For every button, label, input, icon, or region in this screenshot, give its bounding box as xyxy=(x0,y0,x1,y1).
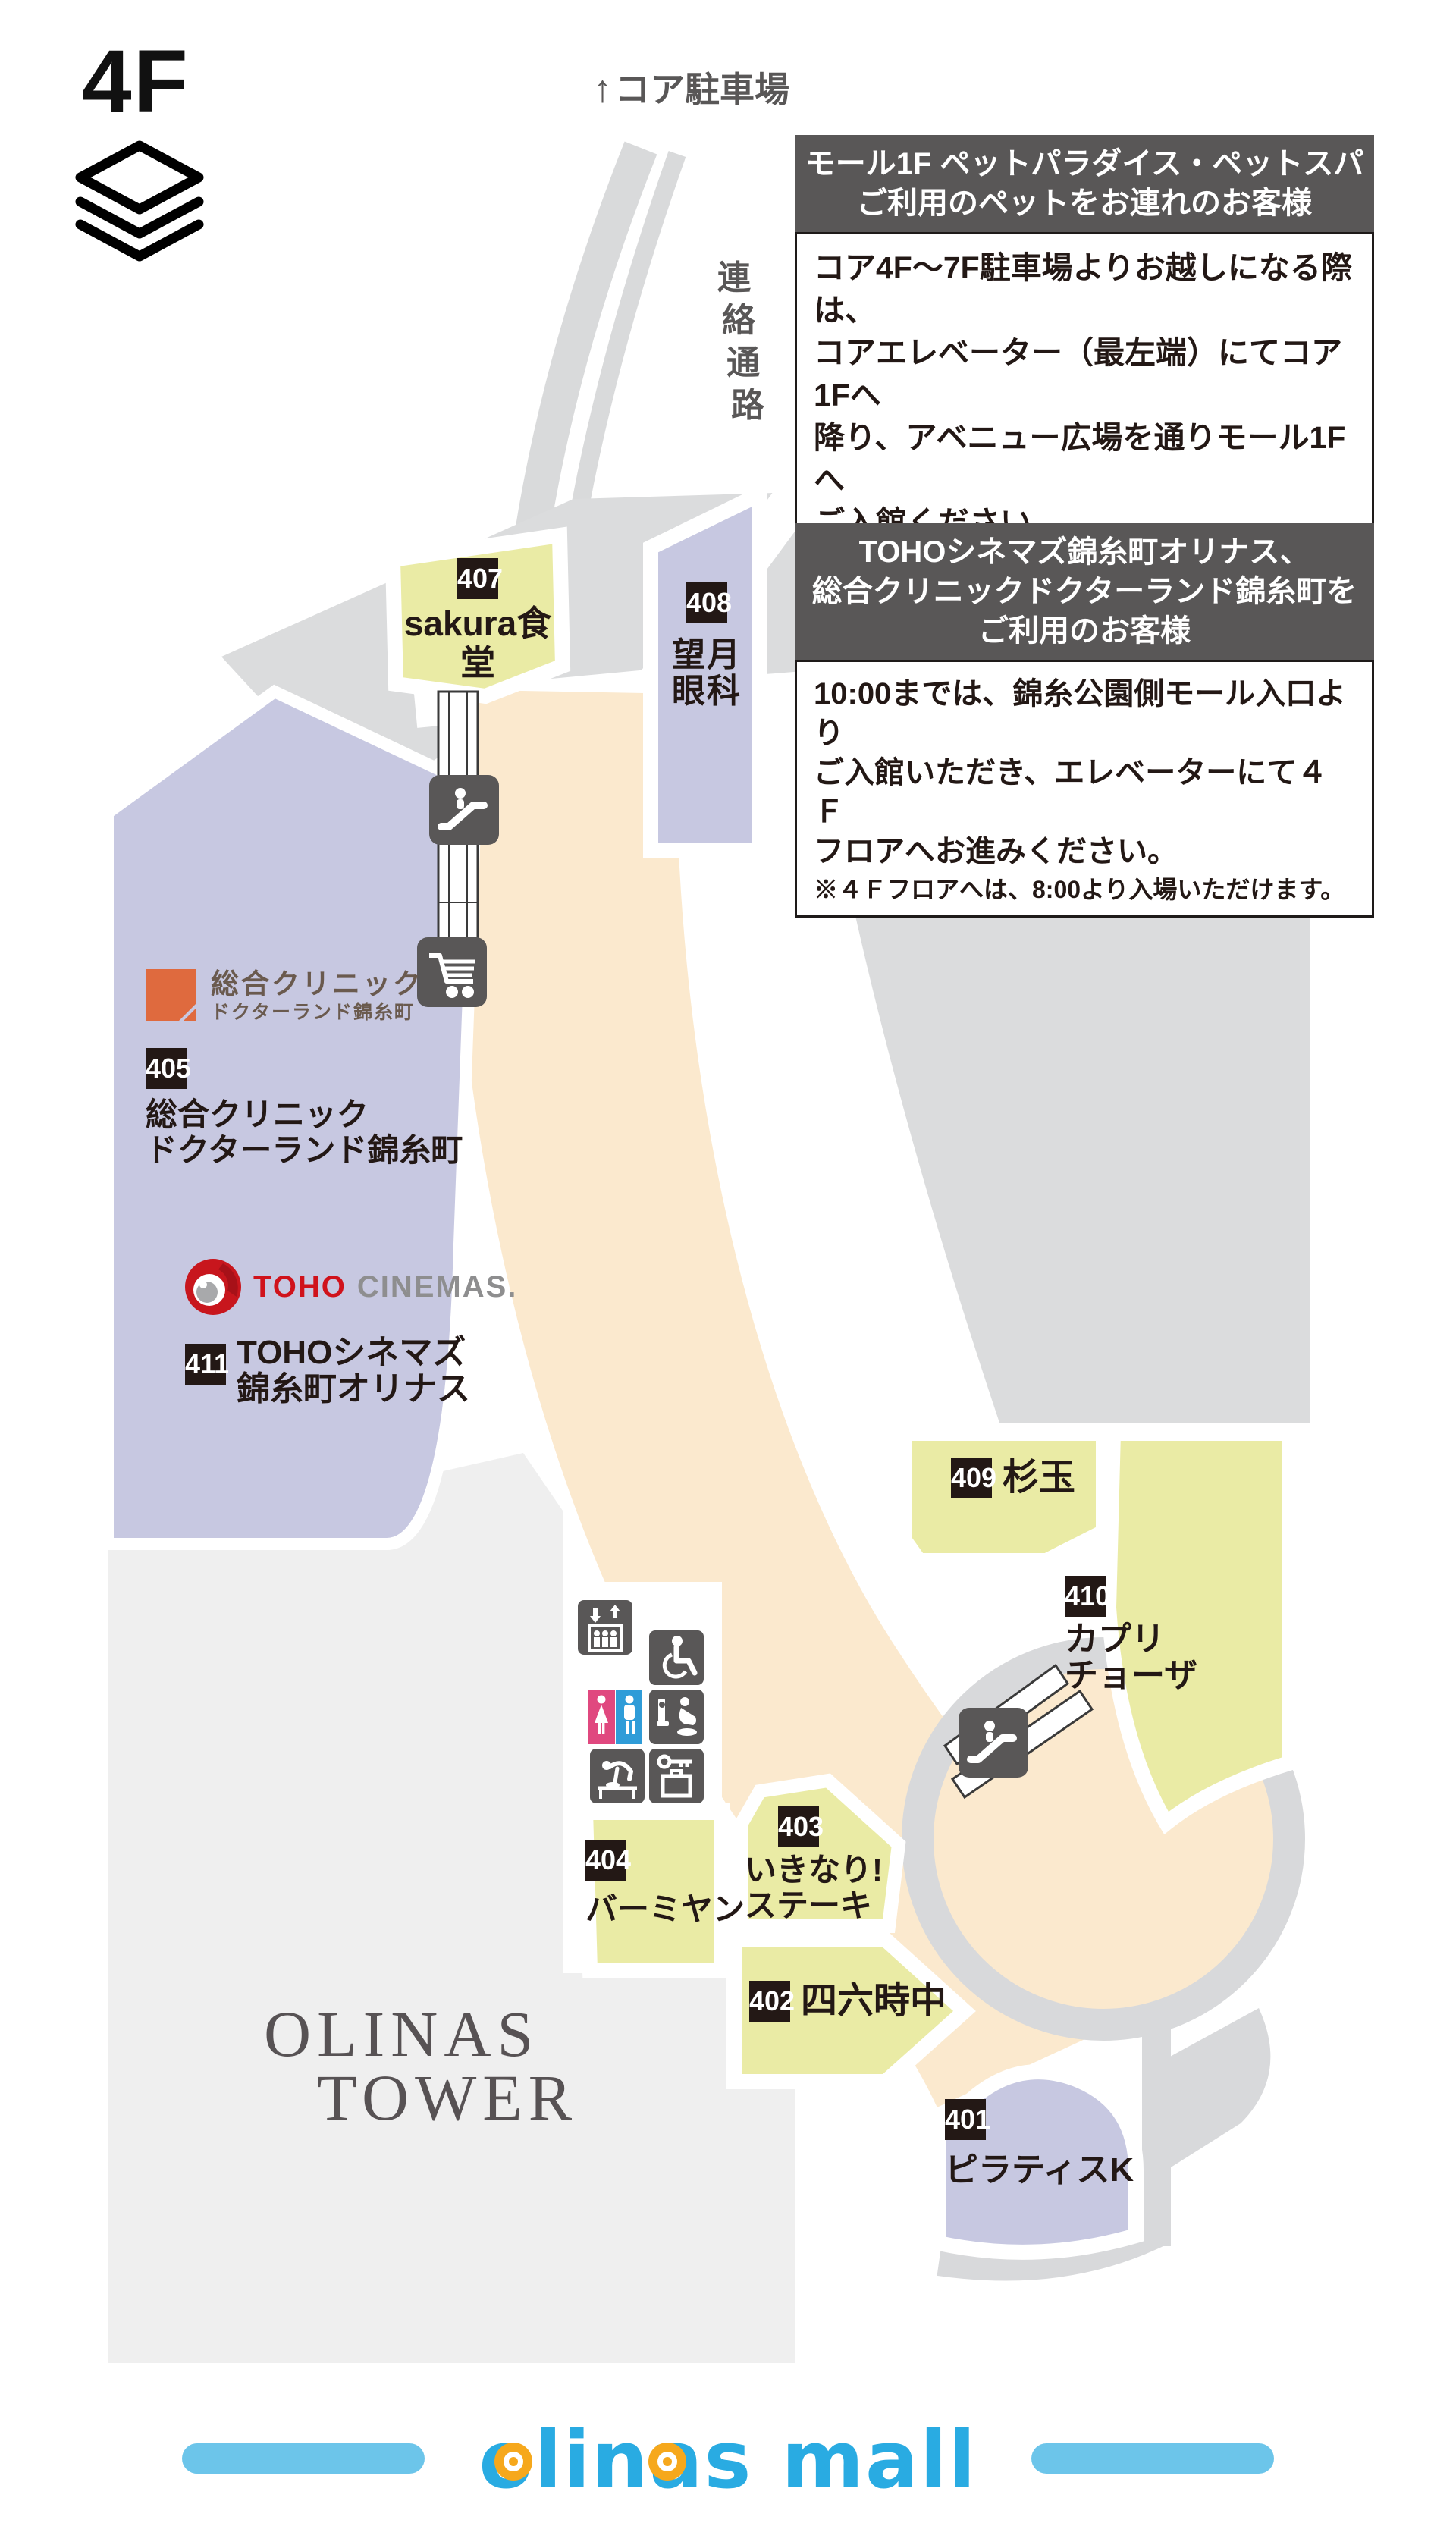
baby-changing-icon xyxy=(590,1749,645,1803)
store-name: 総合クリニック xyxy=(146,1097,463,1132)
store-name: ピラティスK xyxy=(945,2152,1134,2189)
coin-locker-icon xyxy=(649,1749,704,1803)
store-name: ステーキ xyxy=(745,1887,883,1923)
store-number-badge: 402 xyxy=(749,1981,790,2022)
store-number-badge: 403 xyxy=(778,1806,819,1847)
toho-cinemas-logo-icon xyxy=(184,1257,243,1316)
store-label-401: 401 ピラティスK xyxy=(945,2099,1134,2189)
store-name: 眼科 xyxy=(660,673,754,710)
store-label-410: 410 カプリ チョーザ xyxy=(1065,1576,1197,1694)
connector-corridor xyxy=(532,148,677,540)
parking-direction-label: ↑コア駐車場 xyxy=(593,62,789,112)
logo-a-accent xyxy=(648,2443,686,2481)
logo-wordmark: olinas mall xyxy=(479,2414,977,2506)
store-name: sakura食堂 xyxy=(388,604,567,682)
floor-label: 4F xyxy=(82,30,190,133)
layers-icon xyxy=(73,138,206,265)
store-name: ドクターランド錦糸町 xyxy=(146,1132,463,1168)
logo-right-bar xyxy=(1031,2443,1274,2474)
corridor-label-char: 通 xyxy=(726,335,760,384)
wheelchair-icon xyxy=(649,1630,704,1685)
store-number-badge: 407 xyxy=(457,558,498,599)
floor-map-page: 4F ↑コア駐車場 連 絡 通 路 モール1F ペットパラダイス・ペットスパ ご… xyxy=(0,0,1456,2548)
logo-left-bar xyxy=(182,2443,425,2474)
store-label-408: 408 望月 眼科 xyxy=(660,582,754,710)
store-name: 錦糸町オリナス xyxy=(237,1371,470,1407)
store-name: 杉玉 xyxy=(1003,1458,1075,1498)
store-number-badge: 410 xyxy=(1065,1576,1106,1617)
elevator-icon xyxy=(578,1600,632,1655)
store-number-badge: 404 xyxy=(585,1840,626,1881)
logo-o-accent xyxy=(494,2443,532,2481)
cinema-clinic-notice-header: TOHOシネマズ錦糸町オリナス、 総合クリニックドクターランド錦糸町を ご利用の… xyxy=(795,523,1374,660)
store-name: TOHOシネマズ xyxy=(237,1335,470,1371)
store-number-badge: 401 xyxy=(945,2099,986,2140)
olinas-tower-label: OLINAS TOWER xyxy=(114,2002,599,2129)
shopping-cart-icon xyxy=(417,937,487,1007)
cinema-clinic-notice-note: ※４Ｆフロアへは、8:00より入場いただけます。 xyxy=(814,874,1357,905)
store-label-405: 405 総合クリニック ドクターランド錦糸町 xyxy=(146,1048,463,1168)
store-label-404: 404 バーミヤン xyxy=(585,1840,745,1927)
escalator-icon xyxy=(429,775,499,845)
store-name: バーミヤン xyxy=(585,1891,745,1927)
clinic-logo-icon xyxy=(144,968,199,1024)
store-name: 望月 xyxy=(660,637,754,673)
store-label-409: 409 杉玉 xyxy=(951,1458,1075,1498)
store-label-411: 411 TOHOシネマズ 錦糸町オリナス xyxy=(185,1335,470,1407)
corridor-label-char: 絡 xyxy=(722,293,755,341)
cinema-clinic-notice-body: 10:00までは、錦糸公園側モール入口より ご入館いただき、エレベーターにて４Ｆ… xyxy=(795,660,1374,918)
olinas-mall-logo: olinas mall xyxy=(182,2389,1274,2525)
store-label-403: 403 いきなり! ステーキ xyxy=(745,1806,883,1923)
store-name: 四六時中 xyxy=(801,1982,946,2021)
pet-notice-header: モール1F ペットパラダイス・ペットスパ ご利用のペットをお連れのお客様 xyxy=(795,135,1374,232)
store-name: いきなり! xyxy=(745,1852,883,1887)
store-number-badge: 409 xyxy=(951,1458,992,1498)
corridor-label-char: 路 xyxy=(731,378,764,426)
store-label-402: 402 四六時中 xyxy=(749,1981,946,2022)
clinic-logo-text: 総合クリニック xyxy=(211,968,423,1001)
store-number-badge: 411 xyxy=(185,1344,226,1385)
cinema-clinic-notice-box: TOHOシネマズ錦糸町オリナス、 総合クリニックドクターランド錦糸町を ご利用の… xyxy=(795,523,1374,918)
toho-logo-suffix: CINEMAS. xyxy=(357,1270,518,1304)
clinic-logo: 総合クリニック ドクターランド錦糸町 xyxy=(144,968,423,1024)
store-name: カプリ xyxy=(1065,1621,1197,1658)
clinic-logo-subtext: ドクターランド錦糸町 xyxy=(211,1001,423,1024)
corridor-label-char: 連 xyxy=(717,250,751,299)
store-number-badge: 405 xyxy=(146,1048,187,1089)
store-number-badge: 408 xyxy=(686,582,727,623)
toilet-baby-seat-icon xyxy=(649,1690,704,1744)
up-arrow-icon: ↑ xyxy=(593,67,612,110)
toho-cinemas-logo: TOHO CINEMAS. xyxy=(184,1257,517,1316)
store-name: チョーザ xyxy=(1065,1658,1197,1694)
store-label-407: 407 sakura食堂 xyxy=(388,558,567,682)
toho-logo-text: TOHO xyxy=(253,1270,347,1304)
escalator-icon xyxy=(959,1708,1028,1778)
